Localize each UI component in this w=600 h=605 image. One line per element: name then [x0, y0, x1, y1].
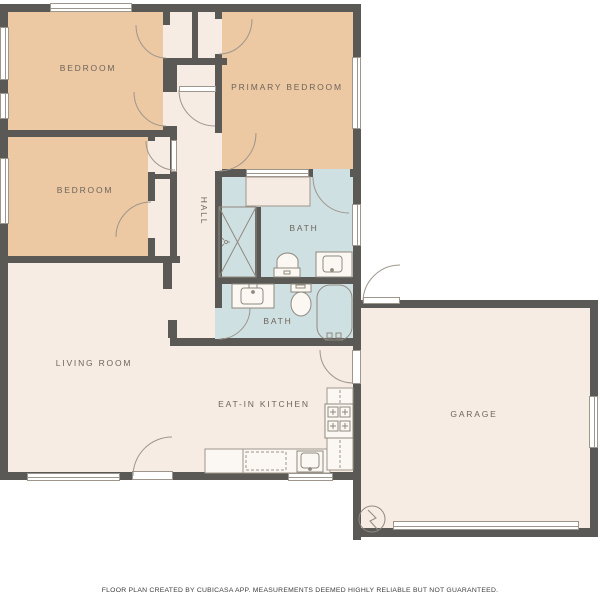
wall: [192, 12, 198, 58]
window: [0, 158, 9, 224]
closet-sliding-door: [246, 169, 309, 177]
door-opening: [148, 141, 155, 172]
door-leaf-front-entry: [132, 471, 173, 480]
door-opening: [313, 169, 350, 177]
wall: [215, 277, 361, 284]
room-label-primary-bedroom: PRIMARY BEDROOM: [231, 82, 343, 92]
wall: [215, 58, 222, 346]
wall: [255, 207, 261, 277]
door-opening: [163, 92, 177, 126]
window: [0, 93, 9, 119]
window: [352, 57, 361, 129]
window: [27, 473, 120, 481]
wall: [0, 130, 177, 137]
door-opening: [215, 133, 222, 171]
room-bath-upper: [222, 177, 353, 277]
window: [50, 3, 132, 12]
door-opening: [215, 19, 222, 54]
door-opening: [163, 25, 170, 58]
window: [288, 473, 333, 481]
door-opening: [215, 308, 222, 339]
room-label-bedroom-middle: BEDROOM: [57, 185, 114, 195]
room-label-living-room: LIVING ROOM: [56, 358, 132, 368]
room-label-hall: HALL: [199, 197, 209, 225]
room-bath-lower: [222, 284, 353, 338]
window: [589, 396, 598, 448]
room-label-bath-lower: BATH: [263, 316, 292, 326]
wall: [148, 174, 177, 179]
wall: [168, 320, 177, 338]
room-bedroom-middle: [8, 137, 148, 256]
room-label-bedroom-top-left: BEDROOM: [60, 63, 117, 73]
footer-disclaimer: FLOOR PLAN CREATED BY CUBICASA APP. MEAS…: [0, 587, 600, 594]
door-leaf-kitchen-garage: [352, 350, 361, 384]
room-label-bath-upper: BATH: [289, 223, 318, 233]
wall: [0, 256, 180, 263]
wall: [170, 338, 361, 346]
wall: [163, 263, 172, 289]
door-leaf-garage-exterior: [363, 297, 400, 304]
floor-plan: BEDROOM PRIMARY BEDROOM BEDROOM HALL BAT…: [0, 0, 600, 605]
door-leaf-hall: [179, 86, 216, 92]
window: [0, 27, 9, 80]
door-leaf-bedroom-middle: [171, 140, 177, 172]
room-label-eat-in-kitchen: EAT-IN KITCHEN: [218, 399, 310, 409]
window: [352, 204, 361, 246]
door-opening: [148, 201, 155, 238]
garage-door: [393, 521, 579, 530]
room-label-garage: GARAGE: [450, 409, 497, 419]
